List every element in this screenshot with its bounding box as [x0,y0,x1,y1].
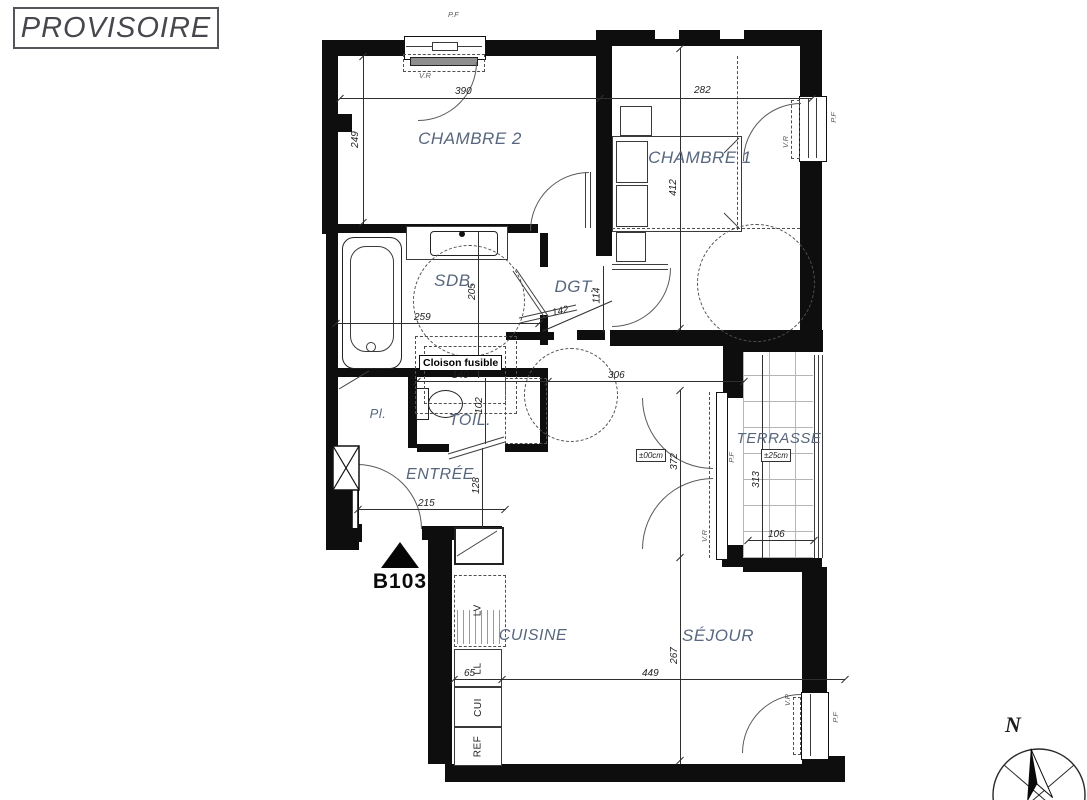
window-mullion [816,98,817,158]
level-badge-terrasse: ±25cm [761,449,791,462]
furniture-zone-dashes [737,56,738,230]
dim-entree-width: 215 [418,498,435,509]
door-swing-arc [612,268,671,327]
faucet [459,231,465,237]
kitchen-tall-unit [454,527,504,565]
terrace-railing [814,355,815,558]
dim-line [363,56,364,224]
room-label-pl: Pl. [358,406,398,421]
wall-segment [326,446,333,550]
bathtub-inner [350,246,394,352]
cloison-fusible-note: Cloison fusible [419,355,502,371]
dim-doors-width: 372 [669,453,680,470]
provisoire-stamp-text: PROVISOIRE [21,12,212,45]
wall-segment [600,30,812,46]
door-swing-arc [642,478,713,549]
wall-segment [800,30,822,98]
room-label-toil: TOIL. [430,412,510,430]
wall-segment [322,114,352,132]
level-badge-sejour: ±00cm [636,449,666,462]
wall-segment [610,330,723,346]
window-pf-label: P.F [448,10,459,19]
dim-line [340,98,812,99]
french-door-sejour [716,392,728,560]
dim-line [748,540,814,541]
pillow [616,185,648,227]
compass-north-label: N [1005,712,1021,738]
room-label-chambre1: CHAMBRE 1 [625,148,775,168]
wall-segment [540,233,548,267]
compass-needle [1018,746,1053,800]
window-pf-label: P.F [831,712,840,723]
dim-line [485,378,486,444]
appliance-lv: LV [468,600,488,620]
dim-terrasse-height: 313 [751,471,762,488]
window-swing-arc [742,694,801,753]
wall-segment [445,764,845,782]
wall-segment [322,40,338,234]
window-pf-label: P.F [829,112,838,123]
room-label-entree: ENTRÉE [390,466,490,484]
evolutive-zone-toil [505,378,547,444]
dim-sejour-height: 267 [669,647,680,664]
window-sejour [801,692,829,760]
door-swing-arc [530,172,589,231]
dim-chambre1-height: 412 [668,179,679,196]
dim-line [358,509,506,510]
wall-notch [655,30,679,39]
dim-sejour-width: 449 [642,668,659,679]
dim-dgt-width: 142 [551,304,570,318]
dim-line [482,448,483,528]
wall-segment [596,30,612,256]
door-leaf-toil [449,442,505,459]
unit-number: B103 [356,570,444,594]
room-label-cuisine: CUISINE [478,627,588,645]
wall-segment [802,567,827,694]
window-pf-label: P.F [727,452,736,463]
dim-sdb-width: 259 [414,312,431,323]
window-chambre1 [799,96,827,162]
nightstand [620,106,652,136]
terrace-railing [822,355,823,558]
floor-plan-page: PROVISOIRE P.F V.R P.F V.R [0,0,1087,800]
appliance-ref: REF [454,727,502,766]
dim-line [336,323,540,324]
window-mullion [810,694,811,756]
dim-chambre2-width: 390 [455,86,472,97]
window-mullion [808,98,809,158]
bathtub-drain [366,342,376,352]
room-label-sejour: SÉJOUR [658,626,778,646]
wall-segment [336,368,418,377]
dim-toil-width: 140 [452,370,469,381]
room-label-terrasse: TERRASSE [719,430,839,447]
dim-line [680,48,681,330]
appliance-cui: CUI [454,687,502,727]
entrance-triangle-icon [381,542,419,568]
compass-rose [993,746,1085,800]
dim-terrasse-width: 106 [768,529,785,540]
provisoire-stamp: PROVISOIRE [13,7,219,49]
terrace-railing [818,355,819,558]
wall-segment [577,330,605,340]
wall-segment [417,444,449,452]
turning-circle-chambre1 [697,224,815,342]
dim-line [603,266,604,332]
wall-notch [720,30,744,39]
wall-segment [326,233,338,373]
dim-line [454,679,845,680]
dim-sejour-top-width: 306 [608,370,625,381]
appliance-ll: LL [454,649,502,687]
wall-segment [482,40,600,56]
window-handle [432,42,458,51]
dim-kitchen-width: 65 [464,668,475,679]
dim-chambre1-width: 282 [694,85,711,96]
wall-segment [326,373,338,448]
dim-line [417,381,744,382]
room-label-dgt: DGT. [535,277,615,297]
dim-chambre2-height: 249 [350,131,361,148]
nightstand [616,232,646,262]
door-leaf-toil [448,437,504,454]
room-label-sdb: SDB. [415,271,495,291]
wall-segment [505,444,548,452]
dim-line [680,390,681,764]
room-label-chambre2: CHAMBRE 2 [395,129,545,149]
